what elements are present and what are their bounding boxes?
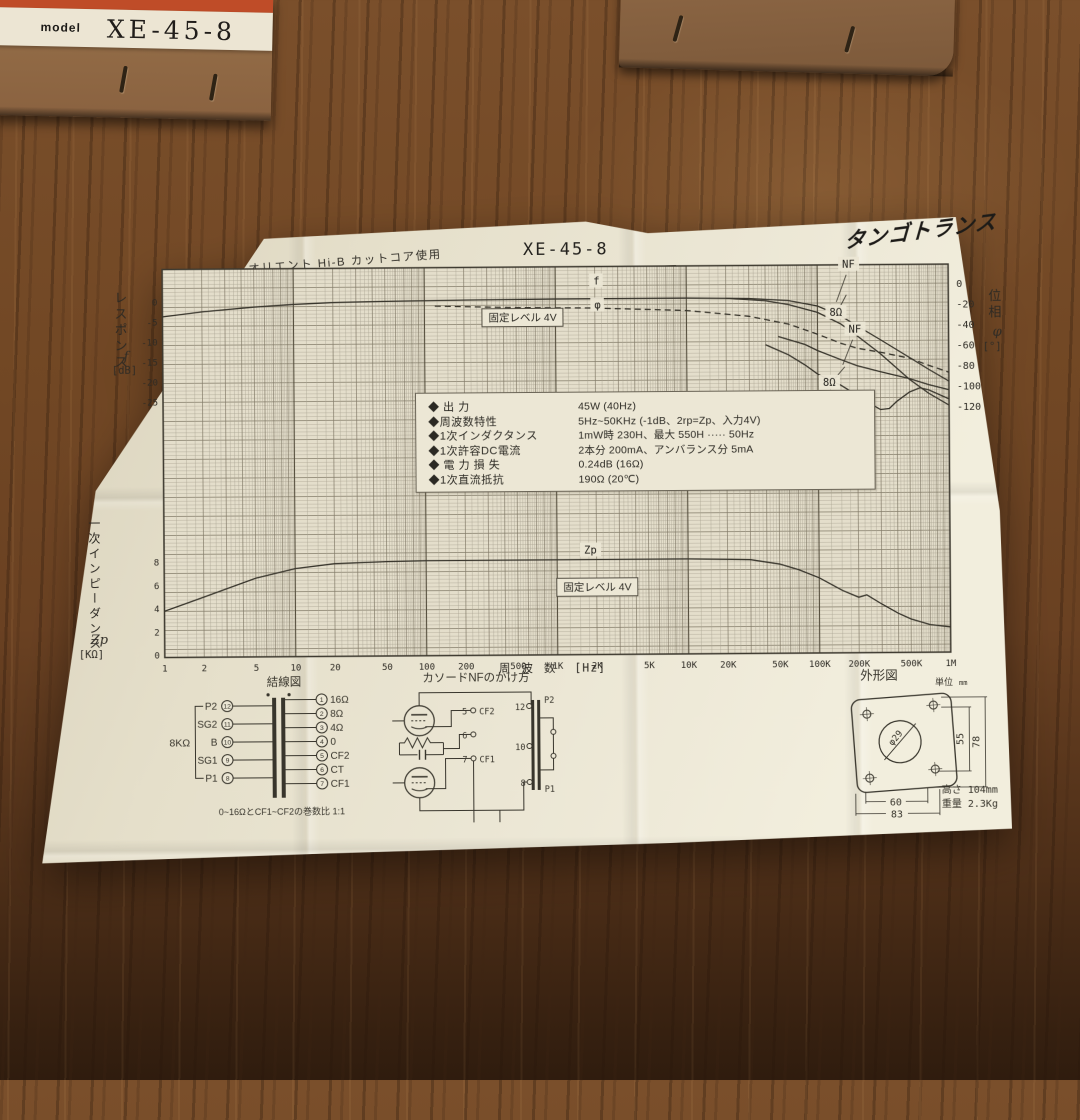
phase-axis-symbol: φ	[993, 325, 1002, 340]
db-tick: -25	[142, 399, 158, 409]
fixed-level-label-upper: 固定レベル 4V	[481, 308, 563, 328]
transformer-bar	[537, 700, 541, 790]
terminal-pin: 6	[320, 767, 324, 774]
dimension-line	[985, 697, 986, 787]
dim-60: 60	[890, 797, 902, 808]
impedance-axis-name: 一次インピーダンス	[86, 517, 104, 652]
spec-name: ◆ 電 力 損 失	[428, 458, 578, 474]
phase-axis-name: 位相	[984, 289, 1003, 321]
spec-name: ◆1次直流抵抗	[429, 473, 579, 489]
response-axis-symbol: f	[124, 350, 129, 365]
tube-symbol	[404, 706, 434, 736]
circuit-pin: 7	[462, 755, 467, 765]
phase-tick: -60	[957, 340, 975, 351]
terminal-pin: 11	[224, 722, 231, 729]
secondary-terminal-name: 0	[330, 737, 336, 748]
staple	[844, 26, 855, 53]
staple	[209, 74, 218, 101]
tube-cathode	[412, 789, 428, 791]
chart-annotation: Zp	[584, 545, 597, 557]
weight-value: 2.3Kg	[968, 799, 998, 810]
circuit-terminal-name: P1	[545, 785, 555, 795]
secondary-terminal-name: CT	[331, 765, 344, 776]
node-circle	[551, 753, 556, 758]
circuit-pin: 6	[462, 731, 467, 741]
x-tick: 5K	[644, 661, 655, 671]
core-bar	[281, 698, 286, 798]
circuit-pin: 12	[515, 703, 525, 713]
cathode-nf-diagram: カソードNFのかけ方5CF267CF112P2108P1	[381, 670, 572, 826]
hole-diameter-label: φ29	[887, 729, 905, 748]
db-tick: -20	[142, 379, 158, 389]
spec-name: ◆1次インダクタンス	[428, 429, 578, 445]
node-circle	[551, 729, 556, 734]
spec-value: 1mW時 230H、最大 550H ····· 50Hz	[578, 428, 754, 444]
terminal-pin: 10	[224, 740, 232, 747]
spec-name: ◆1次許容DC電流	[428, 443, 578, 459]
circuit-terminal-name: P2	[544, 696, 554, 706]
chart-annotation: NF	[842, 259, 855, 271]
terminal-pin: 7	[320, 781, 324, 788]
x-tick: 1	[162, 665, 167, 675]
photo-scene: { "left_box": { "model_label": "model", …	[0, 0, 1080, 1080]
primary-terminal-name: SG2	[197, 720, 218, 731]
staple	[672, 15, 683, 42]
unit-value: mm	[959, 679, 967, 687]
circuit-pin: 8	[521, 779, 526, 789]
terminal-pin: 5	[320, 753, 324, 760]
box-bottom-edge	[0, 106, 271, 121]
spec-name: ◆周波数特性	[428, 414, 578, 430]
zp-tick: 0	[154, 652, 159, 662]
dim-78: 78	[971, 736, 982, 748]
x-tick: 10K	[681, 661, 698, 671]
phase-tick: -20	[956, 299, 974, 310]
unit-label: 単位	[935, 676, 953, 687]
chart-annotation: NF	[848, 324, 861, 336]
node-circle	[527, 703, 532, 708]
terminal-pin: 2	[320, 711, 324, 718]
phase-tick: -120	[957, 402, 981, 413]
x-tick: 20	[330, 663, 341, 673]
winding-ratio-note: 0~16ΩとCF1~CF2の巻数比 1:1	[219, 805, 345, 817]
polarity-dot	[266, 693, 269, 696]
phase-tick: 0	[956, 279, 962, 290]
circuit-terminal-name: CF1	[480, 755, 495, 765]
secondary-terminal-name: 4Ω	[330, 723, 344, 734]
impedance-axis-symbol: Zp	[91, 633, 108, 648]
zp-tick: 8	[154, 559, 159, 569]
node-circle	[527, 743, 532, 748]
cathode-nf-title: カソードNFのかけ方	[422, 670, 529, 685]
dim-83: 83	[891, 809, 903, 820]
x-tick: 2	[202, 664, 207, 674]
secondary-terminal-name: 16Ω	[330, 695, 349, 706]
mounting-plate: φ29	[851, 693, 958, 793]
primary-bracket	[195, 706, 204, 778]
x-tick: 50K	[772, 660, 789, 670]
node-circle	[527, 779, 532, 784]
frequency-axis-unit: [Hz]	[574, 660, 606, 674]
spec-box: ◆ 出 力45W (40Hz)◆周波数特性5Hz~50KHz (-1dB、2rp…	[415, 390, 876, 493]
circuit-pin: 10	[515, 743, 525, 753]
spec-value: 190Ω (20℃)	[579, 472, 640, 487]
paper-content: オリエント Hi-B カットコア使用 XE-45-8 タンゴトランス レスポンス…	[26, 189, 1035, 892]
primary-terminal-name: B	[211, 738, 218, 749]
x-tick: 10	[290, 664, 301, 674]
zp-tick: 2	[154, 628, 159, 638]
terminal-pin: 9	[226, 758, 230, 765]
x-tick: 20K	[720, 661, 737, 671]
primary-impedance-label: 8KΩ	[169, 737, 190, 749]
connection-title: 結線図	[267, 675, 302, 689]
spec-value: 45W (40Hz)	[578, 399, 636, 414]
plate-outline	[851, 693, 958, 793]
db-tick: -10	[141, 339, 157, 349]
polarity-dot	[287, 693, 290, 696]
weight-label: 重量	[942, 797, 962, 810]
secondary-terminal-name: CF2	[330, 751, 349, 762]
datasheet-paper: オリエント Hi-B カットコア使用 XE-45-8 タンゴトランス レスポンス…	[26, 189, 1035, 892]
circuit-wire	[399, 738, 443, 748]
node-circle	[471, 732, 476, 737]
transformer-box-left: model XE-45-8	[0, 0, 273, 121]
height-label: 高さ	[942, 783, 962, 796]
spec-name: ◆ 出 力	[428, 400, 578, 416]
chart-annotation: φ	[594, 300, 600, 312]
box-model-number: XE-45-8	[107, 14, 237, 46]
db-tick: 0	[152, 299, 157, 309]
cardboard-box-right	[619, 0, 955, 77]
terminal-pin: 3	[320, 725, 324, 732]
zp-tick: 6	[154, 582, 159, 592]
phase-tick: -80	[957, 361, 975, 372]
chart-annotation: f	[593, 276, 599, 288]
brand-logo: タンゴトランス	[844, 205, 998, 255]
spec-value: 0.24dB (16Ω)	[578, 458, 643, 473]
response-axis-unit: [dB]	[112, 365, 137, 377]
terminal-pin: 12	[223, 704, 231, 711]
phase-tick: -100	[957, 381, 981, 392]
box-model-word: model	[40, 20, 81, 35]
impedance-axis-unit: [KΩ]	[79, 649, 104, 661]
core-bar	[272, 698, 277, 798]
primary-terminal-name: SG1	[197, 756, 218, 767]
terminal-pin: 4	[320, 739, 324, 746]
spec-row: ◆1次直流抵抗190Ω (20℃)	[429, 471, 865, 489]
terminal-pin: 1	[320, 697, 324, 704]
primary-terminal-name: P2	[205, 702, 218, 713]
circuit-wire	[540, 718, 553, 770]
spec-value: 5Hz~50KHz (-1dB、2rp=Zp、入力4V)	[578, 413, 761, 429]
spec-value: 2本分 200mA、アンバランス分 5mA	[578, 442, 753, 458]
primary-terminal-name: P1	[205, 774, 218, 785]
circuit-pin: 5	[462, 707, 467, 717]
secondary-terminal-name: CF1	[331, 779, 350, 790]
node-circle	[471, 756, 476, 761]
secondary-terminal-name: 8Ω	[330, 709, 344, 720]
dim-55: 55	[955, 733, 966, 745]
zp-tick: 4	[154, 605, 159, 615]
height-value: 104mm	[968, 785, 998, 796]
phase-axis-unit: [°]	[983, 341, 1002, 353]
phase-tick: -40	[956, 320, 974, 331]
chart-annotation: 8Ω	[823, 377, 836, 389]
db-tick: -15	[141, 359, 157, 369]
box-model-label: model XE-45-8	[0, 7, 273, 51]
outline-drawing: 外形図単位mmφ2955786083高さ104mm重量2.3Kg	[829, 650, 1060, 822]
x-tick: 5	[254, 664, 259, 674]
terminal-pin: 8	[226, 776, 230, 783]
fixed-level-label-lower: 固定レベル 4V	[556, 577, 638, 597]
outline-title: 外形図	[860, 668, 898, 682]
staple	[119, 66, 128, 93]
circuit-terminal-name: CF2	[479, 707, 494, 717]
connection-diagram: 結線図P212SG211B10SG19P188KΩ116Ω28Ω34Ω405CF…	[169, 673, 400, 825]
db-tick: -5	[147, 319, 158, 329]
node-circle	[471, 708, 476, 713]
chart-annotation: 8Ω	[829, 307, 842, 319]
tube-cathode	[411, 727, 427, 729]
